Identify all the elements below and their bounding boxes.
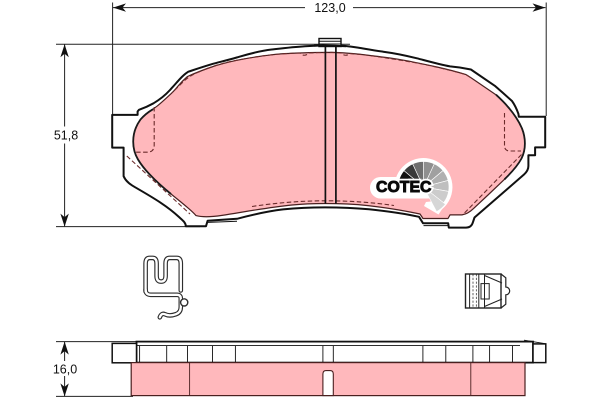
svg-text:123,0: 123,0: [314, 1, 345, 15]
svg-text:COTEC: COTEC: [376, 179, 432, 196]
svg-text:16,0: 16,0: [53, 363, 77, 377]
svg-text:51,8: 51,8: [54, 129, 78, 143]
